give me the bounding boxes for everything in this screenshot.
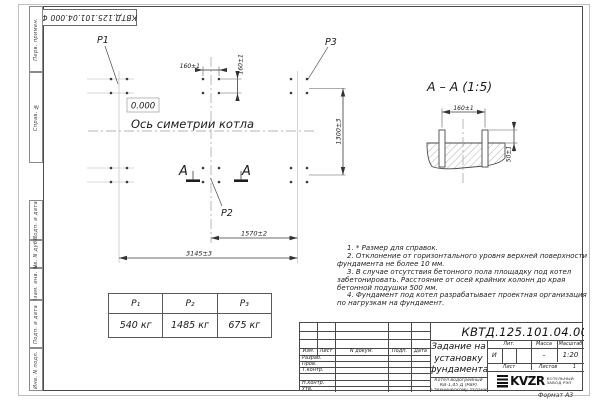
list-label: Лист	[487, 363, 531, 371]
company-cell: KVZR КОТЕЛЬНЫЙ ЗАВОД РЭП	[487, 371, 584, 393]
doc-number: КВТД.125.101.04.000 Ф	[430, 323, 584, 340]
row-utv: Утв.	[300, 386, 335, 392]
note-3: 3. В случае отсутствия бетонного пола пл…	[337, 269, 590, 293]
elevation-value: 0.000	[131, 102, 155, 112]
boiler-axis-label: Ось симетрии котла	[131, 117, 254, 131]
dim-160-vertical: 160±1	[238, 54, 245, 74]
dim-1570: 1570±2	[241, 230, 267, 238]
technical-notes: 1. * Размер для справок. 2. Отклонение о…	[337, 245, 590, 308]
note-2: 2. Отклонение от горизонтального уровня …	[337, 253, 590, 269]
header-doc: N докум.	[335, 348, 388, 355]
load-value-p1: 540 кг	[109, 314, 163, 338]
dim-3145: 3145±3	[186, 250, 212, 258]
dim-160-horizontal: 160±1	[180, 63, 200, 70]
anchor-bolt-right	[482, 130, 488, 167]
kvzr-logo-mark	[497, 375, 508, 388]
header-podp: Подп.	[388, 348, 411, 355]
plan-view: 160±1 160±1 1300±3 1570±2 3145±3 P1 P3	[87, 35, 346, 263]
header-list: Лист	[317, 348, 335, 355]
dim-1300: 1300±3	[335, 118, 343, 144]
drawing-title-line1: Задание на	[430, 341, 487, 353]
drawing-sheet: КВТД.125.101.04.000 Ф Перв. примен. Спра…	[0, 0, 600, 400]
load-label-p2: P2	[221, 208, 233, 219]
anchor-bolt-left	[439, 130, 445, 167]
kvzr-logo-text: KVZR	[510, 374, 545, 388]
section-dim-50: 50±1	[506, 146, 513, 162]
section-view: A – A (1:5) 160±1 50±1	[426, 79, 518, 184]
load-value-p3: 675 кг	[217, 314, 271, 338]
header-izm: Изм.	[300, 348, 317, 355]
masshtab-value: 1:20	[557, 348, 584, 363]
load-label-p1: P1	[97, 35, 109, 46]
listov-label: Листов	[531, 363, 565, 371]
lit-label: Лит.	[487, 340, 531, 348]
drawing-title-line3: фундамента	[430, 364, 487, 376]
masshtab-label: Масштаб	[557, 340, 584, 348]
section-title: A – A (1:5)	[426, 79, 492, 94]
lit-value: И	[487, 348, 502, 363]
row-tkontr: Т.контр.	[300, 367, 335, 373]
load-header-p2: P₂	[163, 294, 217, 314]
listov-value: 1	[565, 363, 584, 371]
load-table-header-row: P₁ P₂ P₃	[109, 294, 272, 314]
section-mark-letter-right: A	[241, 164, 251, 179]
massa-label: Масса	[531, 340, 557, 348]
header-data: Дата	[411, 348, 430, 355]
load-header-p3: P₃	[217, 294, 271, 314]
drawing-title-line2: установку	[430, 353, 487, 365]
load-table: P₁ P₂ P₃ 540 кг 1485 кг 675 кг	[108, 293, 272, 338]
company-name-line2: ЗАВОД РЭП	[547, 381, 574, 386]
product-line3: по техническому заданию	[430, 388, 487, 393]
section-mark-letter-left: A	[178, 164, 188, 179]
load-table-value-row: 540 кг 1485 кг 675 кг	[109, 314, 272, 338]
load-label-p3: P3	[325, 37, 337, 48]
note-4: 4. Фундамент под котел разрабатывает про…	[337, 292, 590, 308]
format-label: Формат А3	[538, 392, 573, 399]
title-block: КВТД.125.101.04.000 Ф Изм. Лист N докум.…	[299, 322, 583, 391]
load-value-p2: 1485 кг	[163, 314, 217, 338]
load-header-p1: P₁	[109, 294, 163, 314]
section-dim-160: 160±1	[453, 105, 473, 112]
massa-value: –	[531, 348, 557, 363]
